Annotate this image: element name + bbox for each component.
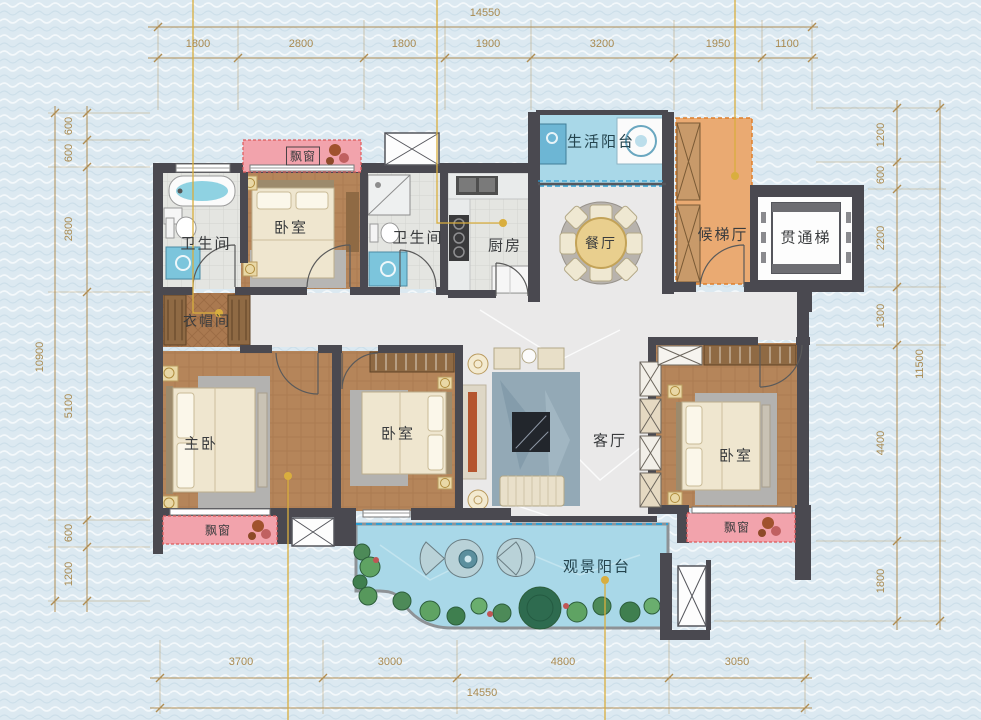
dim-top-seg-1: 2800 — [289, 38, 313, 50]
shower-icon — [368, 175, 410, 215]
dim-right-seg-2: 2200 — [875, 226, 887, 250]
dim-left-seg-0: 600 — [63, 117, 75, 135]
dim-left-total: 10900 — [34, 342, 46, 373]
bay-window-left-label: 飘窗 — [205, 522, 231, 539]
dim-bottom-seg-3: 3050 — [725, 656, 749, 668]
room-label-living: 客厅 — [593, 430, 627, 451]
dim-top-total: 14550 — [470, 7, 501, 19]
room-label-service-balcony: 生活阳台 — [567, 131, 635, 152]
floor-plan-drawing — [0, 0, 981, 720]
room-label-elevator: 贯通梯 — [780, 227, 831, 248]
room-label-bedroom-right: 卧室 — [719, 445, 753, 466]
floor-plan-page: 卫生间 卧室 卫生间 厨房 生活阳台 餐厅 候梯厅 贯通梯 衣帽间 主卧 卧室 … — [0, 0, 981, 720]
dim-bottom-seg-1: 3000 — [378, 656, 402, 668]
dim-left-seg-1: 600 — [63, 144, 75, 162]
room-label-view-balcony: 观景阳台 — [563, 556, 631, 577]
dim-top-seg-6: 1100 — [775, 38, 799, 50]
dim-top-seg-2: 1800 — [392, 38, 416, 50]
room-label-bathroom-mid: 卫生间 — [392, 227, 443, 248]
dim-left-seg-5: 1200 — [63, 562, 75, 586]
dim-top-seg-0: 1800 — [186, 38, 210, 50]
room-label-cloakroom: 衣帽间 — [183, 311, 231, 331]
floor-lamp-icon — [468, 490, 488, 510]
bay-window-right-label: 飘窗 — [724, 519, 750, 536]
armchair-icon — [538, 348, 564, 369]
dim-top-seg-3: 1900 — [476, 38, 500, 50]
tv-icon — [468, 392, 477, 472]
wardrobe-mid-icon — [370, 352, 454, 372]
dim-right-seg-0: 1200 — [875, 123, 887, 147]
dim-right-total: 11500 — [914, 349, 926, 379]
room-label-bedroom-top: 卧室 — [274, 217, 308, 238]
bay-window-top-label: 飘窗 — [286, 147, 320, 166]
dim-bottom-seg-0: 3700 — [229, 656, 253, 668]
armchair-icon — [494, 348, 520, 369]
room-label-elevator-hall: 候梯厅 — [697, 224, 748, 245]
dim-bottom-total: 14550 — [467, 687, 498, 699]
dim-left-seg-2: 2800 — [63, 217, 75, 241]
bathtub-icon — [169, 176, 235, 206]
room-label-kitchen: 厨房 — [488, 235, 522, 256]
dim-top-seg-4: 3200 — [590, 38, 614, 50]
room-label-bedroom-mid: 卧室 — [381, 423, 415, 444]
room-label-bathroom-left: 卫生间 — [180, 233, 231, 254]
dim-left-seg-3: 5100 — [63, 394, 75, 418]
dim-left-seg-4: 600 — [63, 524, 75, 542]
dim-right-seg-3: 1300 — [875, 304, 887, 328]
dim-bottom-seg-2: 4800 — [551, 656, 575, 668]
dim-right-seg-4: 4400 — [875, 431, 887, 455]
vanity-icon-mid — [369, 252, 407, 286]
stove-icon — [449, 215, 469, 261]
dim-right-seg-1: 600 — [875, 166, 887, 184]
room-label-dining: 餐厅 — [585, 233, 617, 253]
dim-top-seg-5: 1950 — [706, 38, 730, 50]
dim-right-seg-5: 1800 — [875, 569, 887, 593]
room-label-master-bedroom: 主卧 — [184, 433, 218, 454]
floor-lamp-icon — [468, 354, 488, 374]
